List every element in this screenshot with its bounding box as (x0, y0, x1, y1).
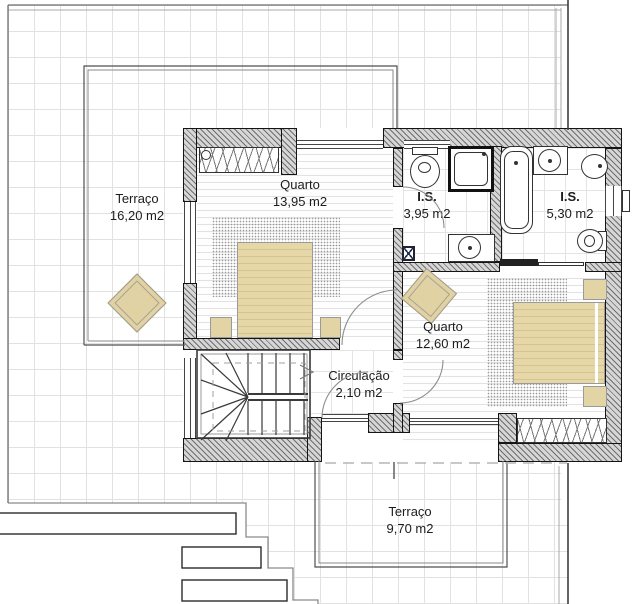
bed-icon (513, 302, 605, 384)
wall (368, 413, 410, 433)
wall (393, 148, 403, 187)
room-name: Circulação (311, 367, 407, 384)
wall (393, 403, 403, 433)
room-area: 5,30 m2 (522, 205, 618, 222)
basin-drain-icon (548, 159, 552, 163)
wall (183, 338, 340, 350)
bedside-table-icon (210, 317, 232, 338)
sliding-door-icon (500, 259, 538, 266)
room-area: 3,95 m2 (379, 205, 475, 222)
room-name: Quarto (252, 176, 348, 193)
room-name: Quarto (395, 318, 491, 335)
wall (183, 283, 197, 340)
room-area: 16,20 m2 (89, 207, 185, 224)
sliding-door-leaf-icon (538, 262, 584, 266)
wardrobe-icon (199, 147, 279, 173)
wall (183, 128, 197, 202)
window-sill (622, 190, 630, 212)
room-area: 12,60 m2 (395, 335, 491, 352)
wall (183, 128, 297, 148)
wall (307, 417, 322, 462)
wall (498, 443, 622, 462)
wardrobe-icon (517, 418, 607, 443)
floor-plan: Terraço 16,20 m2 Quarto 13,95 m2 I.S. 3,… (0, 0, 638, 604)
room-area: 2,10 m2 (311, 384, 407, 401)
room-label-circulacao: Circulação 2,10 m2 (311, 367, 407, 401)
outside-area (293, 600, 319, 604)
toilet-tank-icon (412, 147, 438, 155)
room-area: 9,70 m2 (362, 520, 458, 537)
wall (585, 262, 622, 272)
bedside-table-icon (583, 279, 607, 300)
room-name: Terraço (362, 503, 458, 520)
bathtub-drain-icon (514, 161, 518, 165)
room-area: 13,95 m2 (252, 193, 348, 210)
room-label-quarto1: Quarto 13,95 m2 (252, 176, 348, 210)
window-bedroom1-west (184, 202, 196, 283)
bedside-table-icon (320, 317, 341, 338)
room-label-is2: I.S. 5,30 m2 (522, 188, 618, 222)
room-label-terraco1: Terraço 16,20 m2 (89, 190, 185, 224)
bed-icon (237, 242, 313, 338)
shower-tray-icon (454, 152, 488, 186)
room-label-terraco2: Terraço 9,70 m2 (362, 503, 458, 537)
wall (498, 413, 517, 443)
terrace-door (322, 414, 368, 422)
room-name: I.S. (379, 188, 475, 205)
bidet-icon (581, 154, 608, 179)
duct-shaft-icon (402, 246, 415, 261)
floor-stairwell (197, 350, 310, 438)
wall (393, 262, 500, 272)
room-name: Terraço (89, 190, 185, 207)
window-bedroom2-south (410, 418, 498, 425)
basin-drain-icon (468, 246, 472, 250)
room-name: I.S. (522, 188, 618, 205)
outside-area (244, 537, 268, 604)
window-bedroom1-north (297, 140, 383, 149)
toilet-bowl-icon (584, 235, 595, 247)
wardrobe-rail-icon (201, 150, 211, 160)
bed-headboard-gap (595, 303, 598, 383)
bidet-drain-icon (598, 164, 602, 168)
wall (281, 128, 297, 175)
window-stairwell (184, 358, 196, 438)
shower-drain-icon (482, 152, 486, 156)
toilet-bowl-icon (418, 162, 431, 173)
wall (183, 438, 322, 462)
room-label-is1: I.S. 3,95 m2 (379, 188, 475, 222)
outside-area (268, 568, 294, 604)
room-label-quarto2: Quarto 12,60 m2 (395, 318, 491, 352)
bedside-table-icon (583, 386, 607, 407)
